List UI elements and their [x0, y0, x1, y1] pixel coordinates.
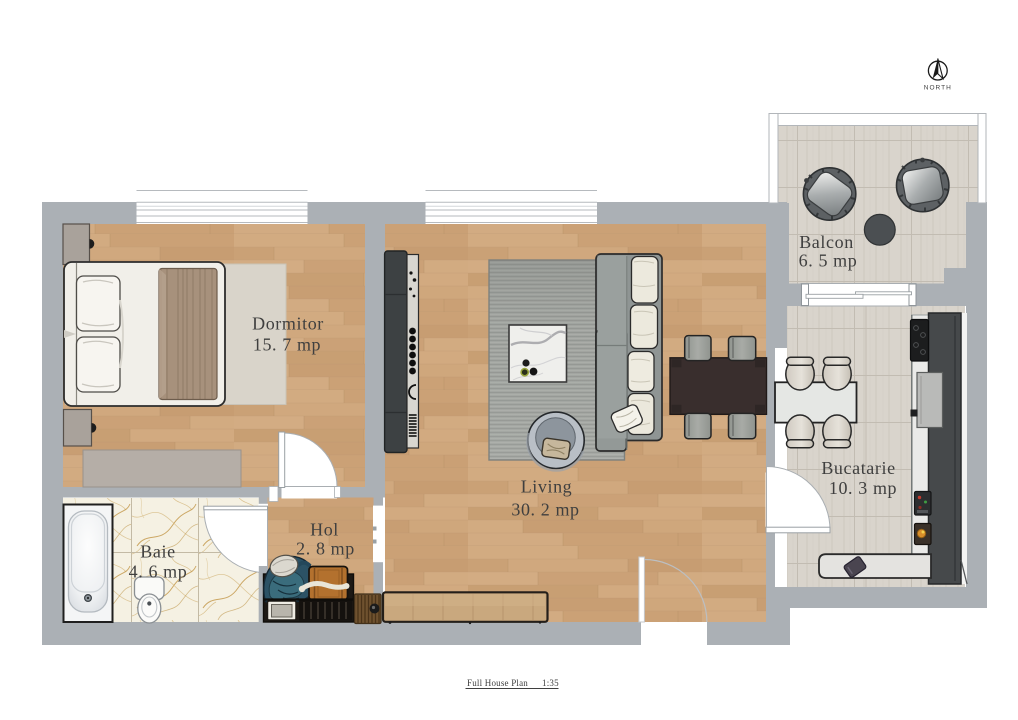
svg-text:Balcon: Balcon [799, 232, 854, 252]
svg-text:1:35: 1:35 [542, 678, 559, 688]
svg-text:10. 3 mp: 10. 3 mp [829, 478, 897, 498]
svg-text:NORTH: NORTH [924, 85, 952, 92]
svg-text:15. 7 mp: 15. 7 mp [253, 335, 321, 355]
svg-text:30. 2 mp: 30. 2 mp [511, 500, 579, 520]
svg-text:Hol: Hol [310, 520, 339, 540]
svg-text:Bucatarie: Bucatarie [821, 458, 895, 478]
svg-text:2. 8 mp: 2. 8 mp [296, 539, 355, 559]
svg-text:4. 6 mp: 4. 6 mp [129, 562, 188, 582]
svg-text:Dormitor: Dormitor [252, 314, 324, 334]
svg-text:Baie: Baie [140, 542, 175, 562]
svg-text:Full House Plan: Full House Plan [467, 678, 528, 688]
svg-text:Living: Living [521, 477, 573, 497]
svg-text:6. 5 mp: 6. 5 mp [799, 251, 858, 271]
